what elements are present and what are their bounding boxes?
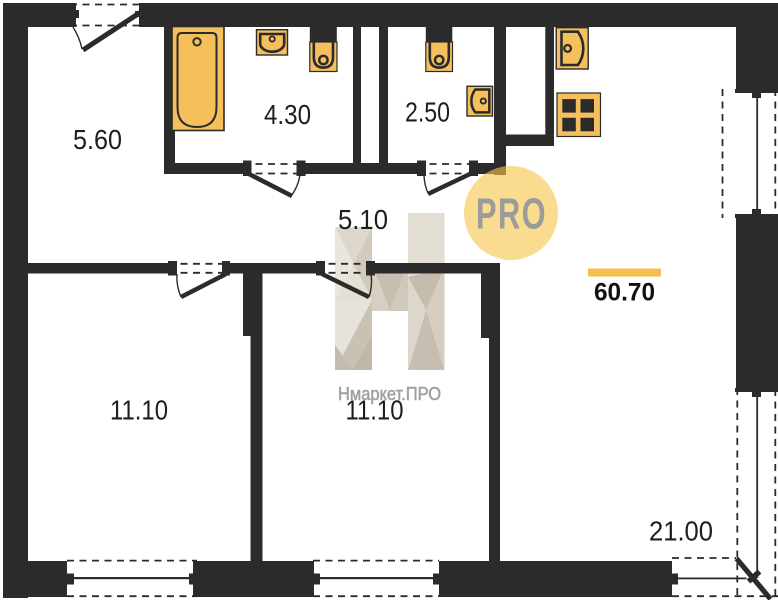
svg-text:5.60: 5.60 xyxy=(73,124,122,155)
svg-text:11.10: 11.10 xyxy=(110,395,168,426)
svg-text:2.50: 2.50 xyxy=(405,97,450,128)
svg-text:4.30: 4.30 xyxy=(264,99,311,130)
svg-text:21.00: 21.00 xyxy=(649,516,713,547)
svg-text:5.10: 5.10 xyxy=(338,204,388,235)
svg-text:PRO: PRO xyxy=(476,190,547,239)
svg-text:11.10: 11.10 xyxy=(346,395,404,426)
svg-text:60.70: 60.70 xyxy=(594,279,655,307)
